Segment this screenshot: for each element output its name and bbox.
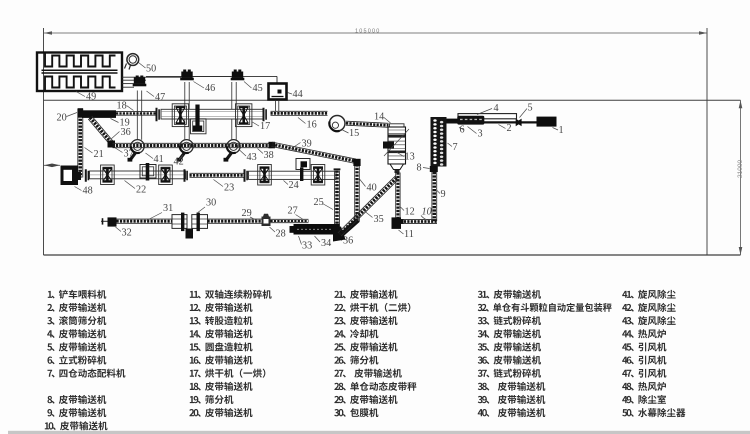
svg-text:6: 6 [460, 125, 465, 136]
svg-text:21000: 21000 [737, 160, 744, 178]
svg-text:50: 50 [146, 64, 156, 75]
svg-text:45: 45 [253, 83, 263, 94]
svg-text:21: 21 [94, 149, 104, 160]
svg-text:46: 46 [205, 83, 215, 94]
svg-text:31: 31 [163, 203, 173, 214]
svg-text:23: 23 [224, 183, 234, 194]
svg-text:24: 24 [289, 180, 299, 191]
svg-text:2: 2 [507, 123, 512, 134]
svg-text:49: 49 [86, 92, 96, 103]
svg-text:5: 5 [528, 103, 533, 114]
svg-text:25: 25 [314, 197, 324, 208]
svg-text:15: 15 [349, 128, 359, 139]
svg-text:12: 12 [405, 207, 415, 218]
svg-text:44: 44 [293, 89, 303, 100]
svg-text:41: 41 [154, 154, 164, 165]
svg-text:16: 16 [307, 120, 317, 131]
svg-text:32: 32 [122, 228, 132, 239]
svg-text:33: 33 [302, 241, 312, 252]
svg-text:30: 30 [206, 198, 216, 209]
svg-text:9: 9 [441, 189, 446, 200]
svg-text:42: 42 [174, 157, 184, 168]
svg-text:39: 39 [302, 139, 312, 150]
svg-text:28: 28 [276, 229, 286, 240]
svg-text:13: 13 [405, 152, 415, 163]
svg-text:11: 11 [404, 229, 414, 240]
svg-text:34: 34 [321, 238, 331, 249]
svg-text:10: 10 [422, 207, 432, 218]
svg-text:40: 40 [367, 183, 377, 194]
svg-text:8: 8 [417, 163, 422, 174]
svg-text:7: 7 [453, 142, 458, 153]
svg-text:105000: 105000 [355, 29, 381, 35]
svg-text:47: 47 [155, 92, 165, 103]
svg-text:43: 43 [247, 152, 257, 163]
svg-text:4: 4 [494, 103, 499, 114]
svg-text:38: 38 [264, 150, 274, 161]
svg-text:48: 48 [83, 186, 93, 197]
svg-text:17: 17 [260, 121, 270, 132]
svg-text:20: 20 [57, 113, 67, 124]
svg-text:22: 22 [136, 185, 146, 196]
svg-text:18: 18 [117, 101, 127, 112]
svg-text:14: 14 [374, 112, 384, 123]
svg-text:36: 36 [121, 127, 131, 138]
svg-text:1: 1 [559, 125, 564, 136]
svg-text:35: 35 [374, 214, 384, 225]
svg-text:3: 3 [478, 129, 483, 140]
